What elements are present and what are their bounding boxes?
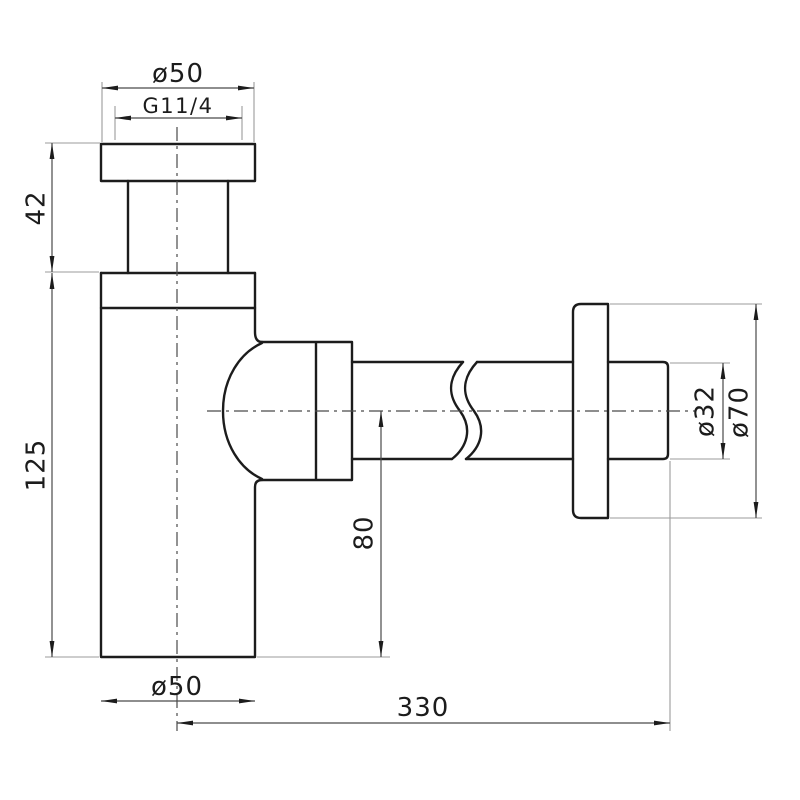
dimension-body-diameter: ø50 xyxy=(101,672,255,702)
dimension-body-height: 125 xyxy=(21,273,52,657)
dim-label-cap-diameter: ø50 xyxy=(152,59,204,89)
dim-label-pipe-diameter: ø32 xyxy=(690,385,720,437)
body-rim-lines xyxy=(101,273,255,308)
body-left-bottom xyxy=(101,273,262,657)
dim-label-axis-to-bottom: 80 xyxy=(349,515,379,550)
body-right-upper xyxy=(255,273,262,342)
technical-drawing: ø50 G11/4 42 125 ø50 80 330 ø32 ø70 xyxy=(0,0,800,800)
dimension-pipe-diameter: ø32 xyxy=(690,363,723,459)
dim-label-cap-to-body: 42 xyxy=(21,190,51,225)
neck-outline xyxy=(128,181,228,273)
dim-label-body-height: 125 xyxy=(21,439,51,492)
dimension-axis-to-bottom: 80 xyxy=(349,411,381,657)
dim-label-flange-diameter: ø70 xyxy=(724,386,754,438)
dim-label-outlet-length: 330 xyxy=(397,693,450,723)
dimension-cap-diameter: ø50 xyxy=(102,59,254,89)
dim-label-body-diameter: ø50 xyxy=(151,672,203,702)
dimension-outlet-length: 330 xyxy=(177,693,670,723)
extension-lines xyxy=(45,82,762,731)
drawing-canvas: ø50 G11/4 42 125 ø50 80 330 ø32 ø70 xyxy=(0,0,800,800)
part-outline xyxy=(101,144,668,657)
dimension-cap-to-body-height: 42 xyxy=(21,143,52,272)
dimension-flange-diameter: ø70 xyxy=(724,304,756,518)
dimension-thread-size: G11/4 xyxy=(115,94,242,118)
cap-nut-outline xyxy=(101,144,255,181)
dim-label-thread-size: G11/4 xyxy=(143,94,214,118)
